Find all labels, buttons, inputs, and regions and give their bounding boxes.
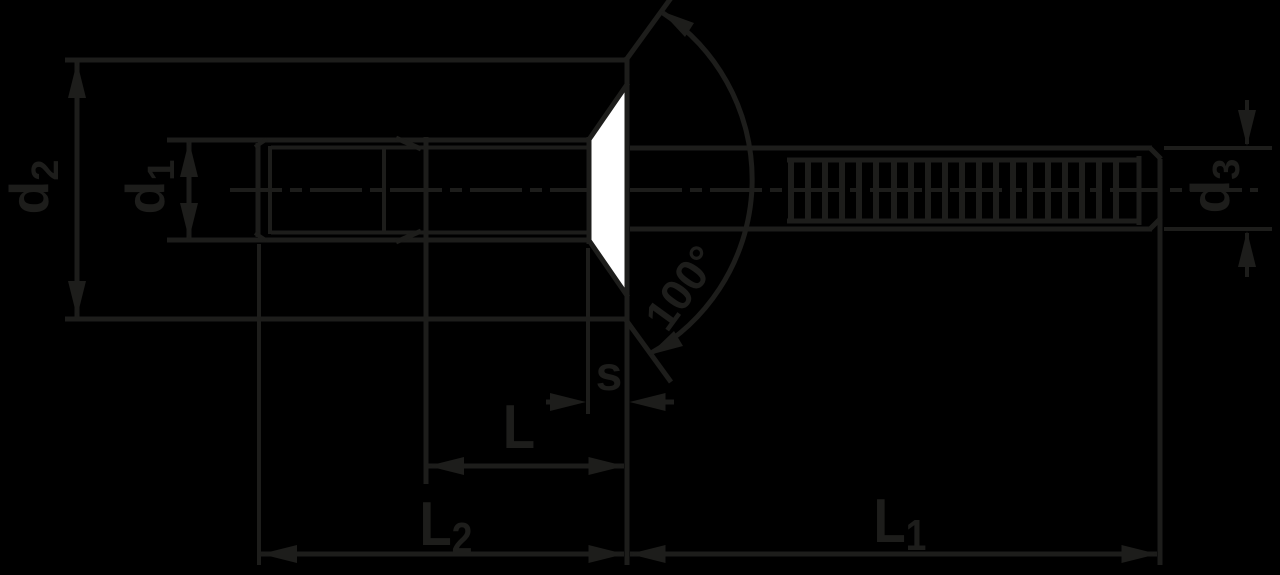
svg-text:d3: d3 [1179,159,1248,214]
svg-text:L2: L2 [420,490,473,563]
svg-text:100°: 100° [636,237,729,339]
svg-text:L1: L1 [874,487,927,560]
svg-text:d2: d2 [0,160,67,215]
svg-text:d1: d1 [114,160,183,215]
svg-text:L: L [503,393,535,462]
svg-text:s: s [596,348,623,401]
